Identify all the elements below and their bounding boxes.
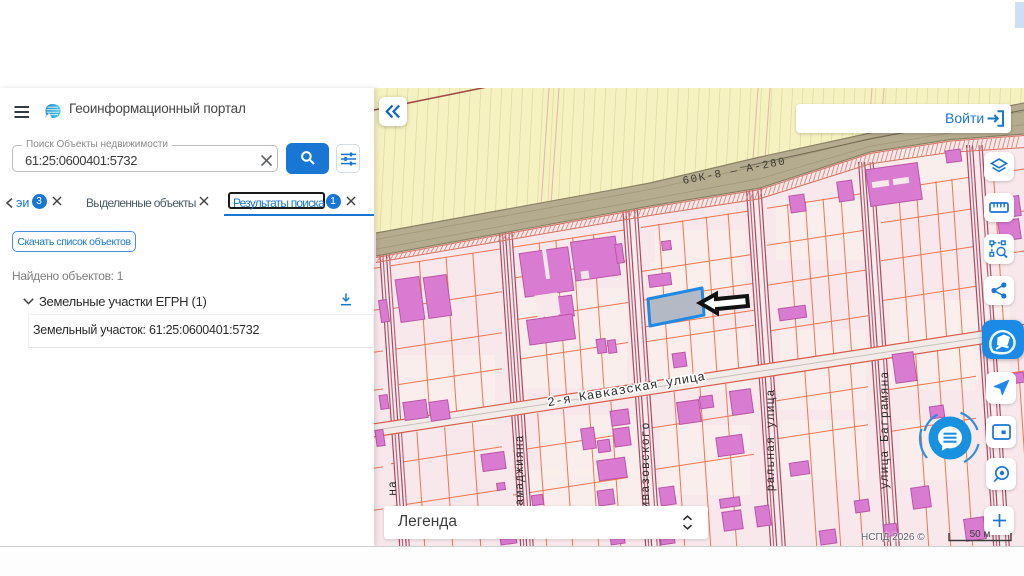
svg-text:улица Баграмяна: улица Баграмяна — [879, 371, 892, 490]
svg-text:ивазовского: ивазовского — [640, 422, 653, 509]
svg-text:ральная улица: ральная улица — [765, 389, 778, 492]
svg-text:на: на — [387, 480, 400, 496]
svg-text:50 м: 50 м — [970, 529, 991, 540]
svg-text:амаджияна: амаджияна — [514, 434, 527, 505]
